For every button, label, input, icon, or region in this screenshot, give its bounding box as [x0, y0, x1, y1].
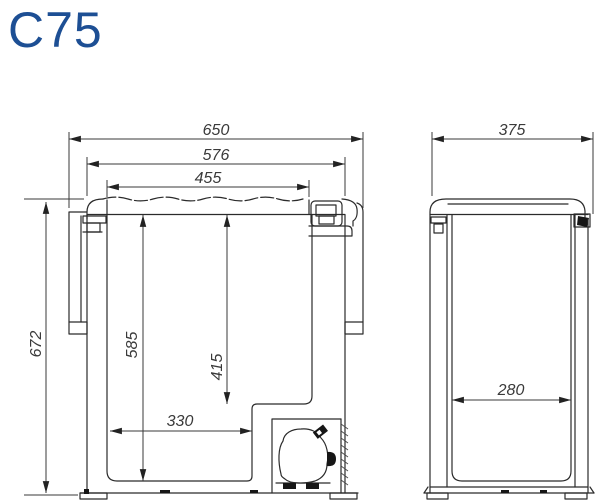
hinge-small-block: [319, 216, 334, 224]
dim-text-overall-height: 672: [28, 331, 45, 358]
dim-text-overall-depth: 375: [499, 122, 526, 139]
compressor-fitting: [327, 452, 336, 466]
model-title: C75: [8, 2, 103, 58]
dim-text-interior-floor-width: 330: [167, 413, 194, 430]
dim-interior-depth: 585: [124, 215, 143, 481]
side-view: [424, 199, 594, 499]
side-latch-block: [431, 217, 446, 223]
dim-overall-height: 672: [24, 199, 84, 495]
dim-text-interior-depth-over-step: 415: [209, 354, 226, 381]
side-latch-inner: [434, 224, 443, 233]
right-handle-bar: [357, 203, 363, 322]
base-foot-right: [330, 493, 357, 499]
lid-top-gasket-line: [103, 197, 303, 201]
dim-overall-width: 650: [69, 122, 363, 208]
dim-text-overall-width: 650: [203, 122, 230, 139]
latch-inner-block: [87, 223, 100, 232]
vent-grille-hatching: [341, 424, 348, 485]
dim-lid-top-width: 455: [107, 170, 309, 197]
dim-text-interior-depth: 585: [124, 332, 141, 359]
compressor-foot-left: [283, 483, 296, 489]
side-foot-left: [427, 493, 448, 499]
compressor-foot-right: [306, 483, 319, 489]
side-view-dimensions: 375 280: [432, 122, 593, 400]
left-handle-bar: [69, 212, 87, 322]
front-view: [69, 197, 363, 499]
dim-interior-floor-width: 330: [110, 413, 252, 431]
hinge-outer-curl: [342, 199, 357, 226]
dim-text-lid-top-width: 455: [195, 170, 222, 187]
dimension-drawing: C75: [0, 0, 600, 501]
side-hinge-pin: [577, 216, 589, 227]
side-interior-liner: [452, 215, 571, 481]
dim-text-interior-width: 280: [497, 382, 525, 399]
dim-interior-width: 280: [452, 382, 571, 400]
right-handle-foot: [345, 322, 363, 334]
compressor-port: [313, 425, 328, 439]
compressor-body: [279, 429, 328, 483]
base-corner-dot: [84, 489, 89, 494]
left-handle-foot: [69, 322, 87, 334]
side-foot-right: [565, 493, 587, 499]
dim-interior-depth-over-step: 415: [209, 215, 227, 404]
side-lid-outline: [430, 199, 585, 219]
dim-text-housing-width: 576: [203, 147, 230, 164]
technical-drawing-page: C75: [0, 0, 600, 501]
dim-overall-depth: 375: [432, 122, 593, 214]
